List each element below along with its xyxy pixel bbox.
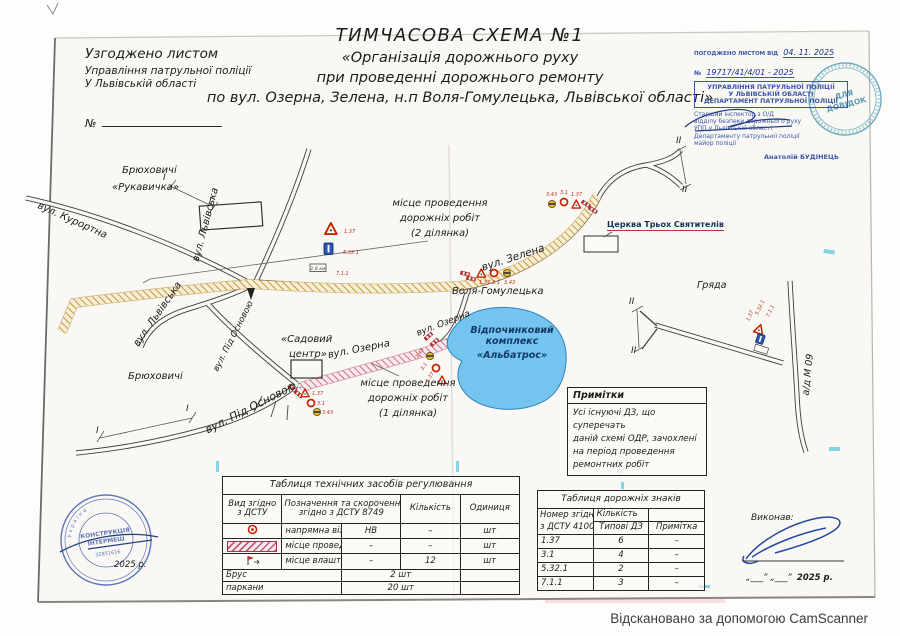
label-albatros: Відпочинковий комплекс «Альбатрос»	[453, 325, 571, 361]
col-header: згідно з ДСТУ 8749	[299, 508, 384, 518]
sign-code: 3.1	[560, 190, 568, 196]
officer-name: Анатолій БУДІНЕЦЬ	[764, 153, 894, 161]
title-line2: «Організація дорожнього руху	[180, 48, 740, 68]
cell-sign-num: 3.1	[538, 549, 594, 563]
cell-abbr: –	[341, 554, 400, 570]
works2-line1: місце проведення	[385, 196, 495, 211]
svg-text:1,8 км: 1,8 км	[310, 266, 326, 272]
notes-box: Примітки Усі існуючі ДЗ, що суперечать д…	[567, 387, 707, 476]
cell-name: місце проведення робіт	[282, 539, 341, 554]
scheme-title: ТИМЧАСОВА СХЕМА №1 «Організація дорожньо…	[180, 24, 740, 108]
sign-code: 1.37	[571, 192, 582, 198]
sign-code: 1.37	[312, 391, 323, 397]
section-numeral-ii: ІІ	[629, 297, 634, 307]
table-row: паркани 20 шт	[223, 582, 520, 595]
executor-date-blanks: „___” „___”	[746, 573, 792, 583]
cone-sign-icon	[426, 352, 433, 359]
table-row: місце проведення робіт – – шт	[223, 539, 520, 554]
section-numeral-i: І	[163, 173, 166, 183]
cell-abbr: –	[341, 539, 400, 554]
cone-sign-icon	[503, 269, 510, 276]
cone-marker-icon	[247, 524, 258, 535]
officer-line: Старший інспектор з О/Д	[694, 111, 894, 118]
works1-line1: місце проведення	[352, 376, 464, 391]
officer-line: майор поліції	[694, 140, 894, 147]
notes-line: Усі існуючі ДЗ, що суперечать	[573, 407, 701, 433]
works2-line2: дорожніх робіт	[385, 211, 495, 226]
works2-line3: (2 ділянка)	[385, 226, 495, 241]
col-header: Примітка	[649, 522, 705, 535]
label-bryukhovychi-top: Брюховичі	[122, 165, 177, 176]
sign-code: 7.1.1	[336, 271, 349, 277]
cell-qty: 4	[593, 549, 649, 563]
label-rukavychka: «Рукавичка»	[112, 182, 179, 193]
no-entry-sign-icon	[433, 365, 440, 372]
table-technical-controls: Таблиця технічних засобів регулювання Ви…	[222, 476, 520, 595]
scanned-traffic-scheme-page: { "colors": { "stamp_blue": "#3b55a8", "…	[0, 0, 900, 636]
works-hatch-swatch	[227, 541, 277, 552]
col-header: Кількість	[593, 509, 649, 522]
cell-qty: 20 шт	[341, 582, 460, 595]
label-works-zone-1: місце проведення дорожніх робіт (1 ділян…	[352, 376, 464, 421]
sign-code: 1.37	[479, 280, 490, 286]
label-church: Церква Трьох Святителів	[607, 220, 724, 231]
sign-code: 3.1	[492, 280, 500, 286]
sign-install-icon	[244, 555, 260, 566]
cell-name: місце влаштування ДЗ	[282, 554, 341, 570]
approval-number-label: №	[85, 117, 96, 130]
org-line: УПРАВЛІННЯ ПАТРУЛЬНОЇ ПОЛІЦІЇ	[696, 84, 846, 91]
section-numeral-ii: ІІ	[631, 346, 636, 356]
cell-qty: –	[401, 539, 460, 554]
table-row: 1.376–	[538, 535, 705, 549]
sign-code: 3.43	[322, 410, 333, 416]
no-entry-sign-icon	[308, 400, 315, 407]
notes-line: ремонтних робіт	[573, 459, 701, 472]
cone-sign-icon	[313, 408, 320, 415]
label-volya-homuletska: Воля-Гомулецька	[452, 286, 544, 297]
title-line1: ТИМЧАСОВА СХЕМА №1	[180, 24, 740, 48]
agreed-number-handwritten: 19717/41/4/01 - 2025	[706, 68, 793, 78]
executor-label: Виконав:	[751, 513, 794, 523]
sign-code: 3.1	[317, 401, 325, 407]
table-row: 3.14–	[538, 549, 705, 563]
section-numeral-ii: ІІ	[676, 136, 681, 146]
cell-qty: 2 шт	[341, 570, 460, 582]
cell-sign-num: 7.1.1	[538, 577, 594, 591]
org-line: ДЕПАРТАМЕНТ ПАТРУЛЬНОЇ ПОЛІЦІЇ	[696, 98, 846, 105]
works1-line2: дорожніх робіт	[352, 391, 464, 406]
notes-line: на період проведення	[573, 446, 701, 459]
cell-qty: 3	[593, 577, 649, 591]
no-entry-sign-icon	[561, 199, 568, 206]
cell-qty: 6	[593, 535, 649, 549]
org-stamp-box: УПРАВЛІННЯ ПАТРУЛЬНОЇ ПОЛІЦІЇ У ЛЬВІВСЬК…	[694, 81, 848, 108]
col-header: Одиниця	[460, 495, 519, 524]
cell-unit: шт	[460, 554, 519, 570]
label-bryukhovychi-low: Брюховичі	[128, 371, 183, 382]
title-line3: при проведенні дорожнього ремонту	[180, 68, 740, 88]
sign-code: 1.37	[344, 229, 355, 235]
cell-abbr: НВ	[341, 524, 400, 539]
officer-line: УПП у Львівській області	[694, 125, 894, 132]
approval-stamp-block: ПОГОДЖЕНО ЛИСТОМ ВІД 04. 11. 2025 № 1971…	[694, 40, 894, 161]
info-sign-icon	[324, 243, 333, 254]
works1-line3: (1 ділянка)	[352, 406, 464, 421]
approval-number-blank	[102, 114, 222, 127]
label-sadovyi-2: центр»	[289, 349, 327, 360]
title-line4: по вул. Озерна, Зелена, н.п Воля-Гомулец…	[180, 88, 740, 108]
building-church	[584, 236, 618, 252]
label-albatros-line2: «Альбатрос»	[453, 350, 571, 361]
org-line: У ЛЬВІВСЬКІЙ ОБЛАСТІ	[696, 91, 846, 98]
cell-name: Брус	[223, 570, 342, 582]
sign-code: 5.32.1	[343, 250, 359, 256]
table-row: 7.1.13–	[538, 577, 705, 591]
section-numeral-ii: ІІ	[682, 185, 687, 195]
designer-year: 2025 р.	[114, 560, 146, 570]
agreed-label: ПОГОДЖЕНО ЛИСТОМ ВІД	[694, 51, 778, 57]
cell-name: напрямна віха, конус	[282, 524, 341, 539]
cell-name: паркани	[223, 582, 342, 595]
cell-qty: –	[401, 524, 460, 539]
agreed-date-handwritten: 04. 11. 2025	[783, 48, 834, 58]
cell-unit: шт	[460, 524, 519, 539]
cell-unit: шт	[460, 539, 519, 554]
label-albatros-line1: Відпочинковий комплекс	[453, 325, 571, 347]
table-row: 5.32.12–	[538, 563, 705, 577]
cell-note: –	[649, 549, 705, 563]
col-header: Номер згідно	[538, 509, 594, 522]
cell-qty: 2	[593, 563, 649, 577]
camscanner-note: Відскановано за допомогою CamScanner	[500, 611, 868, 626]
label-hryada: Гряда	[697, 280, 726, 291]
col-header: з ДСТУ	[237, 508, 267, 518]
cone-sign-icon	[548, 200, 555, 207]
officer-line: Департаменту патрульної поліції	[694, 133, 894, 140]
cell-sign-num: 1.37	[538, 535, 594, 549]
table-row: Брус 2 шт	[223, 570, 520, 582]
officer-line: відділу безпеки дорожнього руху	[694, 118, 894, 125]
cell-sign-num: 5.32.1	[538, 563, 594, 577]
section-numeral-i: І	[209, 196, 212, 206]
table-row: напрямна віха, конус НВ – шт	[223, 524, 520, 539]
table-road-signs: Таблиця дорожніх знаків Номер згідно Кіл…	[537, 490, 705, 591]
notes-title: Примітки	[568, 388, 706, 404]
cell-note: –	[649, 577, 705, 591]
table-row: місце влаштування ДЗ – 12 шт	[223, 554, 520, 570]
table-controls-title: Таблиця технічних засобів регулювання	[223, 477, 520, 495]
cell-qty: 12	[401, 554, 460, 570]
executor-year: 2025 р.	[797, 573, 833, 583]
agreed-number-prefix: №	[694, 70, 701, 77]
col-header: з ДСТУ 4100	[538, 522, 594, 535]
label-works-zone-2: місце проведення дорожніх робіт (2 ділян…	[385, 196, 495, 241]
cell-note: –	[649, 535, 705, 549]
col-header: Кількість	[401, 495, 460, 524]
sign-code: 3.43	[546, 192, 557, 198]
section-numeral-i: І	[96, 426, 99, 436]
section-numeral-i: І	[186, 404, 189, 414]
sign-code: 3.43	[504, 280, 515, 286]
table-signs-title: Таблиця дорожніх знаків	[538, 491, 705, 509]
cell-note: –	[649, 563, 705, 577]
notes-line: даній схемі ОДР, зачохлені	[573, 433, 701, 446]
col-header: Типові ДЗ	[593, 522, 649, 535]
label-sadovyi-1: «Садовий	[281, 334, 332, 345]
